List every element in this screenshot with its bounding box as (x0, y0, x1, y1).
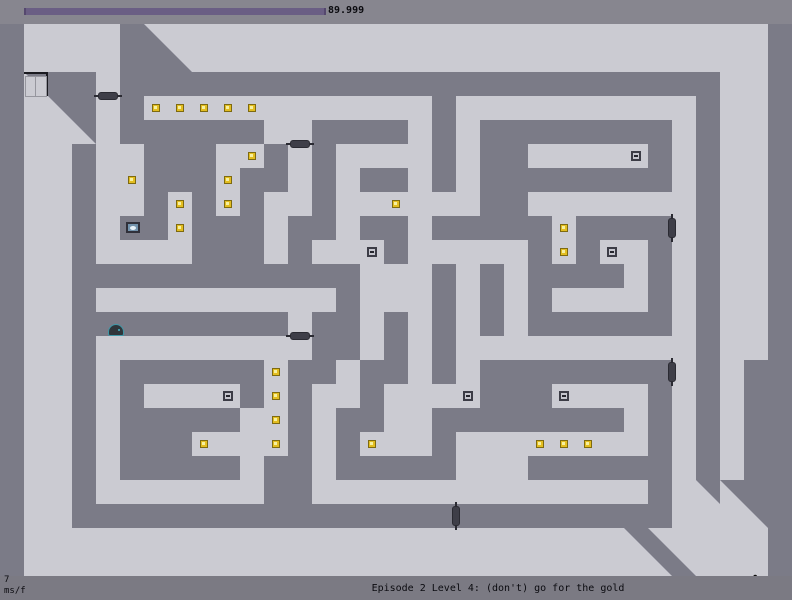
wall-tile (360, 384, 384, 408)
frame-time-unit: ms/f (4, 586, 26, 597)
wall-tile (48, 72, 72, 96)
wall-tile (384, 240, 408, 264)
wall-tile (216, 408, 240, 432)
wall-tile (504, 120, 528, 144)
wall-tile (696, 288, 720, 312)
wall-tile (432, 360, 456, 384)
wall-tile (504, 192, 528, 216)
wall-tile (696, 312, 720, 336)
wall-tile (600, 360, 624, 384)
mine (559, 391, 569, 401)
wall-tile (696, 240, 720, 264)
wall-tile (552, 120, 576, 144)
wall-tile (672, 552, 696, 576)
wall-tile (144, 120, 168, 144)
wall-tile (120, 72, 144, 96)
wall-tile (120, 360, 144, 384)
wall-tile (480, 144, 504, 168)
wall-tile (72, 144, 96, 168)
wall-tile (504, 408, 528, 432)
wall-tile (312, 72, 336, 96)
wall-tile (648, 480, 672, 504)
wall-tile (216, 264, 240, 288)
wall-tile (624, 504, 648, 528)
gold-piece (176, 104, 184, 112)
wall-tile (624, 360, 648, 384)
wall-tile (168, 264, 192, 288)
wall-tile (696, 360, 720, 384)
wall-tile (144, 432, 168, 456)
gold-piece (392, 200, 400, 208)
wall-tile (648, 168, 672, 192)
wall-tile (528, 360, 552, 384)
wall-tile (384, 360, 408, 384)
wall-tile (744, 480, 768, 504)
gold-piece (584, 440, 592, 448)
wall-tile (144, 192, 168, 216)
wall-tile (648, 288, 672, 312)
wall-tile (120, 408, 144, 432)
exit-door (24, 72, 48, 96)
wall-tile (480, 72, 504, 96)
wall-tile (528, 240, 552, 264)
wall-tile (0, 240, 24, 264)
wall-tile (504, 144, 528, 168)
wall-tile (696, 216, 720, 240)
wall-tile (624, 168, 648, 192)
wall-tile (696, 384, 720, 408)
wall-tile (648, 72, 672, 96)
gold-piece (224, 200, 232, 208)
wall-tile (0, 192, 24, 216)
wall-tile (0, 336, 24, 360)
wall-tile (0, 72, 24, 96)
gold-piece (368, 440, 376, 448)
wall-tile (0, 48, 24, 72)
gold-piece (152, 104, 160, 112)
wall-tile (456, 72, 480, 96)
wall-tile (432, 120, 456, 144)
mine (607, 247, 617, 257)
wall-tile (240, 312, 264, 336)
wall-tile (192, 192, 216, 216)
wall-tile (744, 384, 768, 408)
wall-tile (648, 432, 672, 456)
wall-tile (0, 264, 24, 288)
wall-tile (168, 120, 192, 144)
wall-tile (312, 216, 336, 240)
wall-tile (432, 72, 456, 96)
n-game-screen: { "hud_top": { "timer_value": "89.999", … (0, 0, 792, 600)
wall-tile (72, 288, 96, 312)
wall-tile (192, 168, 216, 192)
wall-tile (768, 528, 792, 552)
wall-tile (528, 72, 552, 96)
door (290, 332, 310, 340)
wall-tile (0, 216, 24, 240)
wall-tile (0, 144, 24, 168)
wall-tile (480, 168, 504, 192)
wall-tile (504, 216, 528, 240)
wall-tile (576, 240, 600, 264)
wall-tile (264, 72, 288, 96)
wall-tile (120, 504, 144, 528)
wall-tile (216, 72, 240, 96)
wall-tile (504, 504, 528, 528)
wall-tile (624, 216, 648, 240)
gold-piece (224, 104, 232, 112)
wall-tile (0, 528, 24, 552)
wall-tile (216, 504, 240, 528)
wall-tile (768, 336, 792, 360)
wall-tile (168, 432, 192, 456)
wall-tile (432, 288, 456, 312)
wall-tile (264, 168, 288, 192)
wall-tile (384, 216, 408, 240)
wall-tile (480, 408, 504, 432)
wall-tile (528, 216, 552, 240)
wall-tile (168, 456, 192, 480)
wall-tile (528, 264, 552, 288)
wall-tile (72, 216, 96, 240)
gold-piece (200, 104, 208, 112)
wall-tile (0, 312, 24, 336)
wall-tile (696, 192, 720, 216)
wall-tile (768, 432, 792, 456)
wall-tile (288, 360, 312, 384)
wall-tile (624, 120, 648, 144)
wall-tile (648, 456, 672, 480)
wall-tile (696, 336, 720, 360)
wall-tile (768, 288, 792, 312)
wall-tile (696, 456, 720, 480)
wall-tile (480, 216, 504, 240)
wall-tile (144, 144, 168, 168)
wall-tile (432, 432, 456, 456)
wall-tile (312, 264, 336, 288)
wall-tile (648, 144, 672, 168)
wall-tile (336, 432, 360, 456)
wall-tile (120, 384, 144, 408)
wall-tile (696, 168, 720, 192)
wall-tile (768, 48, 792, 72)
gold-piece (272, 416, 280, 424)
wall-tile (72, 264, 96, 288)
wall-tile (624, 72, 648, 96)
wall-tile (384, 312, 408, 336)
wall-tile (768, 240, 792, 264)
mine (463, 391, 473, 401)
wall-tile (336, 120, 360, 144)
wall-tile (576, 408, 600, 432)
wall-tile (696, 264, 720, 288)
wall-tile (240, 240, 264, 264)
wall-tile (144, 48, 168, 72)
wall-tile (576, 72, 600, 96)
wall-tile (528, 168, 552, 192)
top-hud: 89.999 (0, 0, 792, 24)
wall-tile (600, 312, 624, 336)
wall-tile (768, 480, 792, 504)
wall-tile (528, 408, 552, 432)
wall-tile (432, 96, 456, 120)
wall-tile (576, 264, 600, 288)
wall-tile (696, 432, 720, 456)
door (452, 506, 460, 526)
wall-tile (240, 216, 264, 240)
wall-tile (72, 240, 96, 264)
gold-piece (560, 248, 568, 256)
wall-tile (192, 264, 216, 288)
wall-tile (72, 504, 96, 528)
wall-tile (72, 432, 96, 456)
wall-tile (456, 216, 480, 240)
game-viewport[interactable] (0, 24, 792, 576)
wall-tile (192, 360, 216, 384)
wall-tile (144, 72, 168, 96)
wall-tile (48, 96, 72, 120)
wall-tile (144, 312, 168, 336)
wall-tile (480, 192, 504, 216)
wall-tile (72, 384, 96, 408)
wall-tile (480, 312, 504, 336)
wall-tile (0, 456, 24, 480)
wall-tile (312, 168, 336, 192)
wall-tile (600, 456, 624, 480)
wall-tile (192, 456, 216, 480)
wall-tile (216, 240, 240, 264)
wall-tile (528, 456, 552, 480)
wall-tile (456, 408, 480, 432)
wall-tile (288, 384, 312, 408)
wall-tile (72, 312, 96, 336)
door (668, 362, 676, 382)
wall-tile (624, 456, 648, 480)
wall-tile (0, 288, 24, 312)
wall-tile (504, 72, 528, 96)
wall-tile (696, 72, 720, 96)
exit-switch (126, 222, 140, 233)
wall-tile (648, 240, 672, 264)
wall-tile (576, 120, 600, 144)
wall-tile (648, 384, 672, 408)
wall-tile (528, 288, 552, 312)
wall-tile (432, 168, 456, 192)
gold-piece (560, 224, 568, 232)
mine (631, 151, 641, 161)
wall-tile (240, 72, 264, 96)
wall-tile (480, 288, 504, 312)
wall-tile (72, 360, 96, 384)
wall-tile (768, 96, 792, 120)
wall-tile (648, 552, 672, 576)
wall-tile (240, 192, 264, 216)
wall-tile (672, 72, 696, 96)
wall-tile (480, 360, 504, 384)
wall-tile (744, 432, 768, 456)
wall-tile (432, 216, 456, 240)
wall-tile (360, 168, 384, 192)
wall-tile (768, 24, 792, 48)
timer-value: 89.999 (328, 5, 364, 16)
wall-tile (576, 312, 600, 336)
timer-progress-bar (24, 8, 326, 15)
wall-tile (144, 216, 168, 240)
wall-tile (384, 72, 408, 96)
wall-tile (384, 168, 408, 192)
wall-tile (120, 120, 144, 144)
wall-tile (432, 144, 456, 168)
wall-tile (264, 456, 288, 480)
wall-tile (504, 384, 528, 408)
wall-tile (168, 72, 192, 96)
wall-tile (432, 408, 456, 432)
wall-tile (72, 408, 96, 432)
wall-tile (336, 264, 360, 288)
wall-tile (0, 96, 24, 120)
wall-tile (144, 456, 168, 480)
wall-tile (288, 480, 312, 504)
wall-tile (432, 456, 456, 480)
wall-tile (768, 192, 792, 216)
wall-tile (0, 360, 24, 384)
wall-tile (216, 216, 240, 240)
wall-tile (120, 96, 144, 120)
wall-tile (312, 360, 336, 384)
wall-tile (0, 24, 24, 48)
gold-piece (224, 176, 232, 184)
wall-tile (144, 408, 168, 432)
wall-tile (120, 264, 144, 288)
wall-tile (240, 168, 264, 192)
wall-tile (384, 504, 408, 528)
wall-tile (768, 456, 792, 480)
wall-tile (0, 384, 24, 408)
wall-tile (768, 168, 792, 192)
gold-piece (272, 368, 280, 376)
wall-tile (648, 504, 672, 528)
wall-tile (312, 120, 336, 144)
wall-tile (384, 456, 408, 480)
wall-tile (168, 144, 192, 168)
wall-tile (768, 216, 792, 240)
wall-tile (408, 504, 432, 528)
wall-tile (216, 120, 240, 144)
wall-tile (648, 312, 672, 336)
wall-tile (744, 456, 768, 480)
wall-tile (480, 384, 504, 408)
wall-tile (624, 312, 648, 336)
wall-tile (168, 408, 192, 432)
wall-tile (696, 144, 720, 168)
wall-tile (768, 72, 792, 96)
wall-tile (552, 168, 576, 192)
wall-tile (288, 72, 312, 96)
wall-tile (264, 264, 288, 288)
wall-tile (336, 72, 360, 96)
wall-tile (168, 48, 192, 72)
wall-tile (240, 120, 264, 144)
wall-tile (432, 264, 456, 288)
wall-tile (360, 456, 384, 480)
wall-tile (288, 408, 312, 432)
gold-piece (176, 200, 184, 208)
floor-guard-drone (108, 324, 124, 336)
wall-tile (360, 360, 384, 384)
exit-door-panel (35, 76, 47, 97)
wall-tile (552, 72, 576, 96)
wall-tile (264, 312, 288, 336)
gold-piece (272, 392, 280, 400)
gold-piece (128, 176, 136, 184)
wall-tile (360, 216, 384, 240)
wall-tile (600, 408, 624, 432)
wall-tile (264, 144, 288, 168)
wall-tile (312, 336, 336, 360)
wall-tile (768, 264, 792, 288)
wall-tile (504, 168, 528, 192)
wall-tile (192, 312, 216, 336)
wall-tile (480, 120, 504, 144)
wall-tile (648, 408, 672, 432)
wall-tile (696, 408, 720, 432)
wall-tile (168, 168, 192, 192)
wall-tile (312, 192, 336, 216)
wall-tile (768, 504, 792, 528)
wall-tile (72, 480, 96, 504)
wall-tile (384, 120, 408, 144)
wall-tile (696, 96, 720, 120)
wall-tile (144, 168, 168, 192)
wall-tile (0, 552, 24, 576)
wall-tile (240, 264, 264, 288)
mine (367, 247, 377, 257)
wall-tile (192, 216, 216, 240)
wall-tile (600, 72, 624, 96)
wall-tile (768, 408, 792, 432)
wall-tile (336, 408, 360, 432)
wall-tile (120, 24, 144, 48)
wall-tile (432, 312, 456, 336)
wall-tile (720, 480, 744, 504)
wall-tile (120, 432, 144, 456)
door (98, 92, 118, 100)
door (290, 140, 310, 148)
frame-time-readout: 7 ms/f (4, 575, 26, 597)
frame-time-value: 7 (4, 575, 26, 586)
wall-tile (192, 120, 216, 144)
wall-tile (144, 360, 168, 384)
wall-tile (768, 360, 792, 384)
wall-tile (552, 360, 576, 384)
wall-tile (144, 264, 168, 288)
wall-tile (360, 408, 384, 432)
wall-tile (216, 360, 240, 384)
gold-piece (248, 152, 256, 160)
wall-tile (648, 264, 672, 288)
wall-tile (576, 504, 600, 528)
wall-tile (72, 96, 96, 120)
wall-tile (408, 456, 432, 480)
wall-tile (240, 504, 264, 528)
wall-tile (552, 264, 576, 288)
wall-tile (336, 456, 360, 480)
gold-piece (560, 440, 568, 448)
wall-tile (72, 336, 96, 360)
wall-tile (336, 288, 360, 312)
wall-tile (0, 432, 24, 456)
wall-tile (360, 504, 384, 528)
